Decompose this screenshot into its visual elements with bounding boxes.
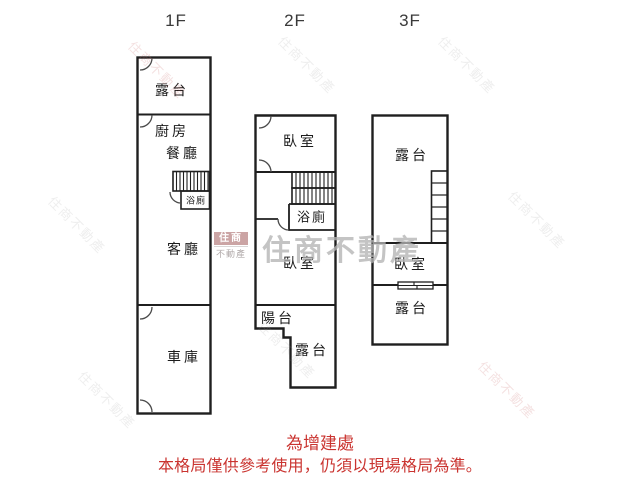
room-label-bedroom-2f-top: 臥室	[283, 131, 317, 151]
window-icon	[398, 282, 433, 289]
door-arc-icon	[140, 400, 152, 412]
room-label-dining: 餐廳	[166, 143, 200, 163]
brand-logo-subtitle: 不動產	[214, 246, 248, 260]
door-arc-icon	[140, 58, 152, 70]
room-label-living: 客廳	[167, 239, 201, 259]
door-arc-icon	[170, 192, 181, 203]
floorplan-image: 1F 2F 3F	[0, 0, 640, 480]
footnote-addition-note: 為增建處	[0, 429, 640, 454]
room-label-terrace-2f: 露台	[295, 340, 329, 360]
stairs-icon	[432, 171, 448, 243]
room-label-terrace-3f-top: 露台	[395, 145, 429, 165]
brand-logo-box: 住商	[214, 232, 248, 245]
door-arc-icon	[140, 115, 152, 127]
room-label-bath-1f: 浴廁	[186, 194, 206, 207]
door-arc-icon	[140, 307, 152, 319]
room-label-terrace-1f: 露台	[155, 80, 189, 100]
door-arc-icon	[259, 160, 271, 172]
room-label-kitchen: 廚房	[155, 121, 189, 141]
brand-text-watermark: 住商不動產	[262, 227, 422, 269]
stairs-icon	[292, 172, 336, 204]
stairs-icon	[173, 172, 210, 192]
footnote-disclaimer: 本格局僅供參考使用，仍須以現場格局為準。	[0, 452, 640, 476]
door-arc-icon	[259, 116, 271, 128]
room-label-garage: 車庫	[167, 347, 201, 367]
room-label-bath-2f: 浴廁	[297, 207, 327, 226]
room-label-terrace-3f-bottom: 露台	[395, 298, 429, 318]
brand-logo-watermark: 住商 不動產	[214, 232, 248, 260]
room-label-balcony: 陽台	[261, 308, 295, 328]
